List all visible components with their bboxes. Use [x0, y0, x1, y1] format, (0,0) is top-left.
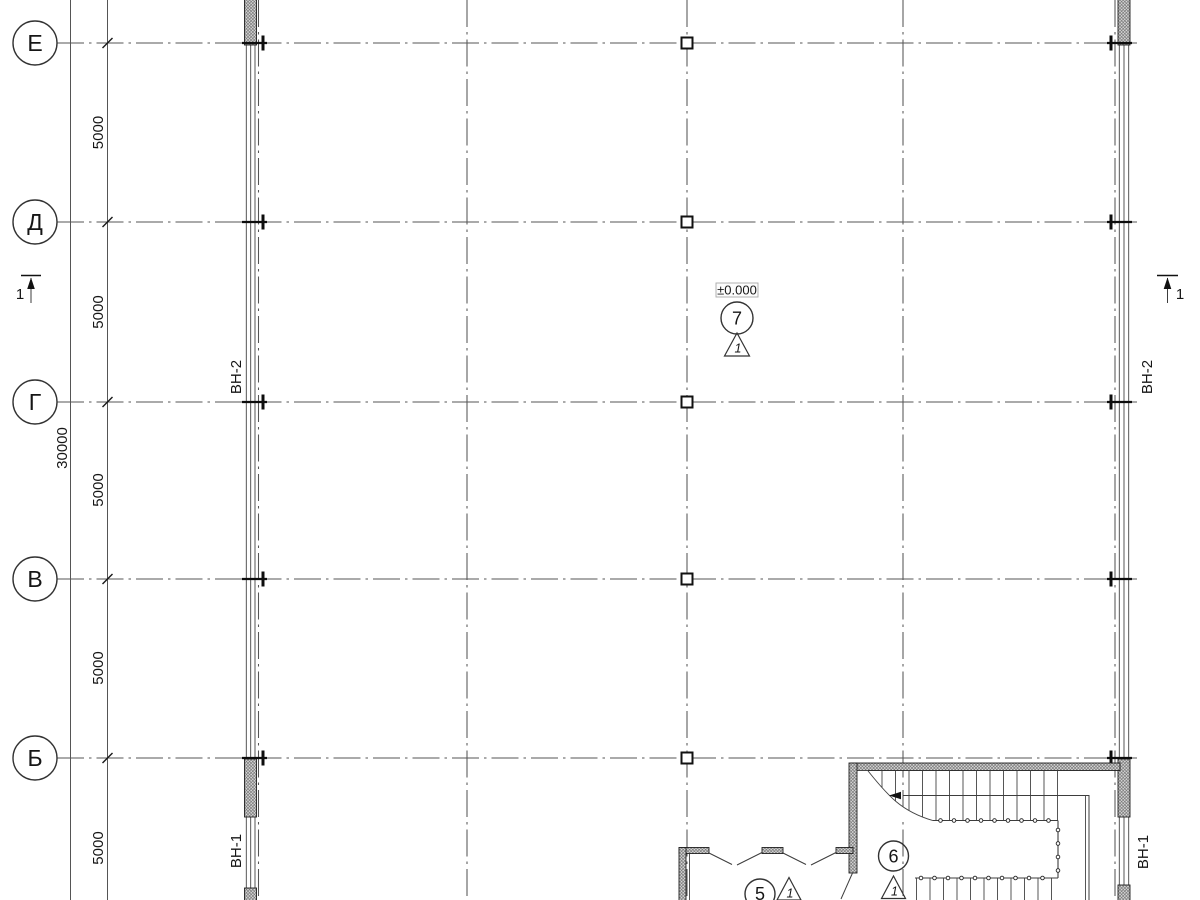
stair-top-wall [851, 763, 1120, 771]
baluster-dot [966, 819, 970, 823]
baluster-dot [919, 876, 923, 880]
axis-label-v: В [27, 566, 42, 592]
baluster-dot [973, 876, 977, 880]
detail-triangle-6-label: 1 [891, 885, 898, 899]
baluster-dot [960, 876, 964, 880]
column-marker-square [682, 217, 693, 228]
baluster-dot [933, 876, 937, 880]
baluster-dot [987, 876, 991, 880]
column-marker-square [682, 574, 693, 585]
stair-shaft-wall [903, 796, 1089, 900]
axis-label-g: Г [29, 389, 42, 415]
room-marker-6: 6 [888, 847, 898, 867]
room-marker-5-group: 5 1 [745, 878, 801, 900]
baluster-dot [993, 819, 997, 823]
baluster-dot [1047, 819, 1051, 823]
floor-plan-page: Е Д Г В Б 5000 5000 5000 5000 5000 30000… [0, 0, 1200, 900]
elevation-value: ±0.000 [717, 283, 757, 298]
partition-wall-vertical [679, 848, 686, 900]
window-mark-vn2-left: ВН-2 [228, 360, 245, 394]
baluster-dot [979, 819, 983, 823]
baluster-dot [1014, 876, 1018, 880]
dim-bay-5: 5000 [90, 831, 107, 864]
dim-bay-4: 5000 [90, 651, 107, 684]
baluster-dot [1041, 876, 1045, 880]
window-mark-vn1-right: ВН-1 [1135, 835, 1152, 869]
partition-stub-b [762, 848, 783, 854]
elevation-annotation: ±0.000 7 1 [716, 283, 758, 357]
stair-left-wall [849, 763, 857, 873]
partition-leaf-1 [709, 853, 732, 865]
partition-stub-c [836, 848, 853, 854]
right-wall-hatch-top [1118, 0, 1130, 45]
window-mark-vn2-right: ВН-2 [1139, 360, 1156, 394]
partition-leaf-3 [783, 853, 806, 865]
stair-door-swing [841, 873, 853, 899]
left-wall-hatch-bottom [245, 888, 257, 900]
axis-label-d: Д [27, 209, 43, 235]
section-arrow-icon [1164, 278, 1172, 290]
baluster-dot [1033, 819, 1037, 823]
section-arrow-icon [27, 278, 35, 290]
baluster-dot [952, 819, 956, 823]
floor-plan-canvas: Е Д Г В Б 5000 5000 5000 5000 5000 30000… [0, 0, 1200, 900]
detail-triangle-7-label: 1 [735, 342, 742, 356]
stair-balusters [919, 819, 1060, 880]
room-marker-7: 7 [732, 309, 742, 329]
baluster-dot [1056, 828, 1060, 832]
baluster-dot [1000, 876, 1004, 880]
dim-bay-3: 5000 [90, 473, 107, 506]
baluster-dot [939, 819, 943, 823]
axis-bubbles: Е Д Г В Б [13, 21, 57, 780]
axis-label-e: Е [27, 30, 42, 56]
column-marker-square [682, 397, 693, 408]
baluster-dot [1056, 869, 1060, 873]
dim-overall: 30000 [54, 427, 71, 469]
left-wall-hatch-top [245, 0, 257, 45]
bottom-partition [679, 848, 853, 900]
window-mark-vn1-left: ВН-1 [228, 834, 245, 868]
axis-label-b: Б [27, 745, 42, 771]
left-wall-hatch-mid [245, 759, 257, 817]
baluster-dot [1006, 819, 1010, 823]
dim-bay-1: 5000 [90, 116, 107, 149]
dimension-texts: 5000 5000 5000 5000 5000 30000 [54, 116, 107, 865]
room-marker-6-group: 6 1 [879, 841, 909, 899]
section-label-right: 1 [1176, 286, 1184, 303]
wall-column-ticks [103, 36, 1133, 766]
stair-treads-lower [917, 879, 1052, 900]
detail-triangle-5-label: 1 [787, 887, 794, 900]
staircase [841, 763, 1120, 900]
baluster-dot [1020, 819, 1024, 823]
right-wall-hatch-bottom [1118, 885, 1130, 900]
room-marker-5: 5 [755, 884, 765, 900]
section-mark-left: 1 [16, 276, 41, 304]
section-mark-right: 1 [1157, 276, 1184, 304]
dim-bay-2: 5000 [90, 295, 107, 328]
column-marker-square [682, 753, 693, 764]
section-label-left: 1 [16, 286, 24, 303]
column-marker-square [682, 38, 693, 49]
partition-leaf-4 [811, 853, 836, 866]
baluster-dot [1056, 842, 1060, 846]
baluster-dot [946, 876, 950, 880]
baluster-dot [1027, 876, 1031, 880]
baluster-dot [1056, 855, 1060, 859]
partition-leaf-2 [737, 853, 762, 866]
